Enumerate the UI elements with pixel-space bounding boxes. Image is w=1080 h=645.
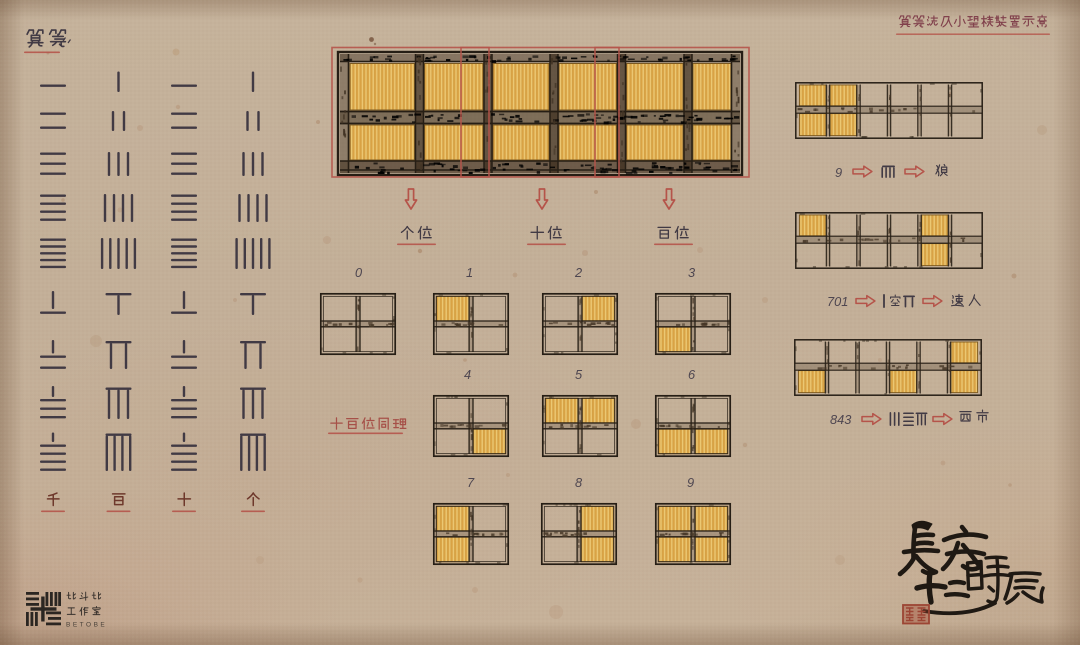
svg-text:9: 9 bbox=[687, 475, 694, 490]
svg-text:8: 8 bbox=[575, 475, 583, 490]
svg-text:3: 3 bbox=[688, 265, 695, 280]
svg-text:1: 1 bbox=[466, 265, 473, 280]
svg-text:BETOBE: BETOBE bbox=[66, 622, 107, 629]
svg-text:6: 6 bbox=[688, 367, 696, 382]
svg-text:2: 2 bbox=[574, 265, 582, 280]
svg-text:0: 0 bbox=[355, 265, 363, 280]
svg-text:7: 7 bbox=[467, 475, 475, 490]
svg-text:843: 843 bbox=[830, 412, 851, 427]
svg-text:5: 5 bbox=[575, 367, 583, 382]
svg-text:701: 701 bbox=[827, 294, 848, 309]
svg-text:9: 9 bbox=[835, 165, 842, 180]
svg-text:4: 4 bbox=[464, 367, 471, 382]
